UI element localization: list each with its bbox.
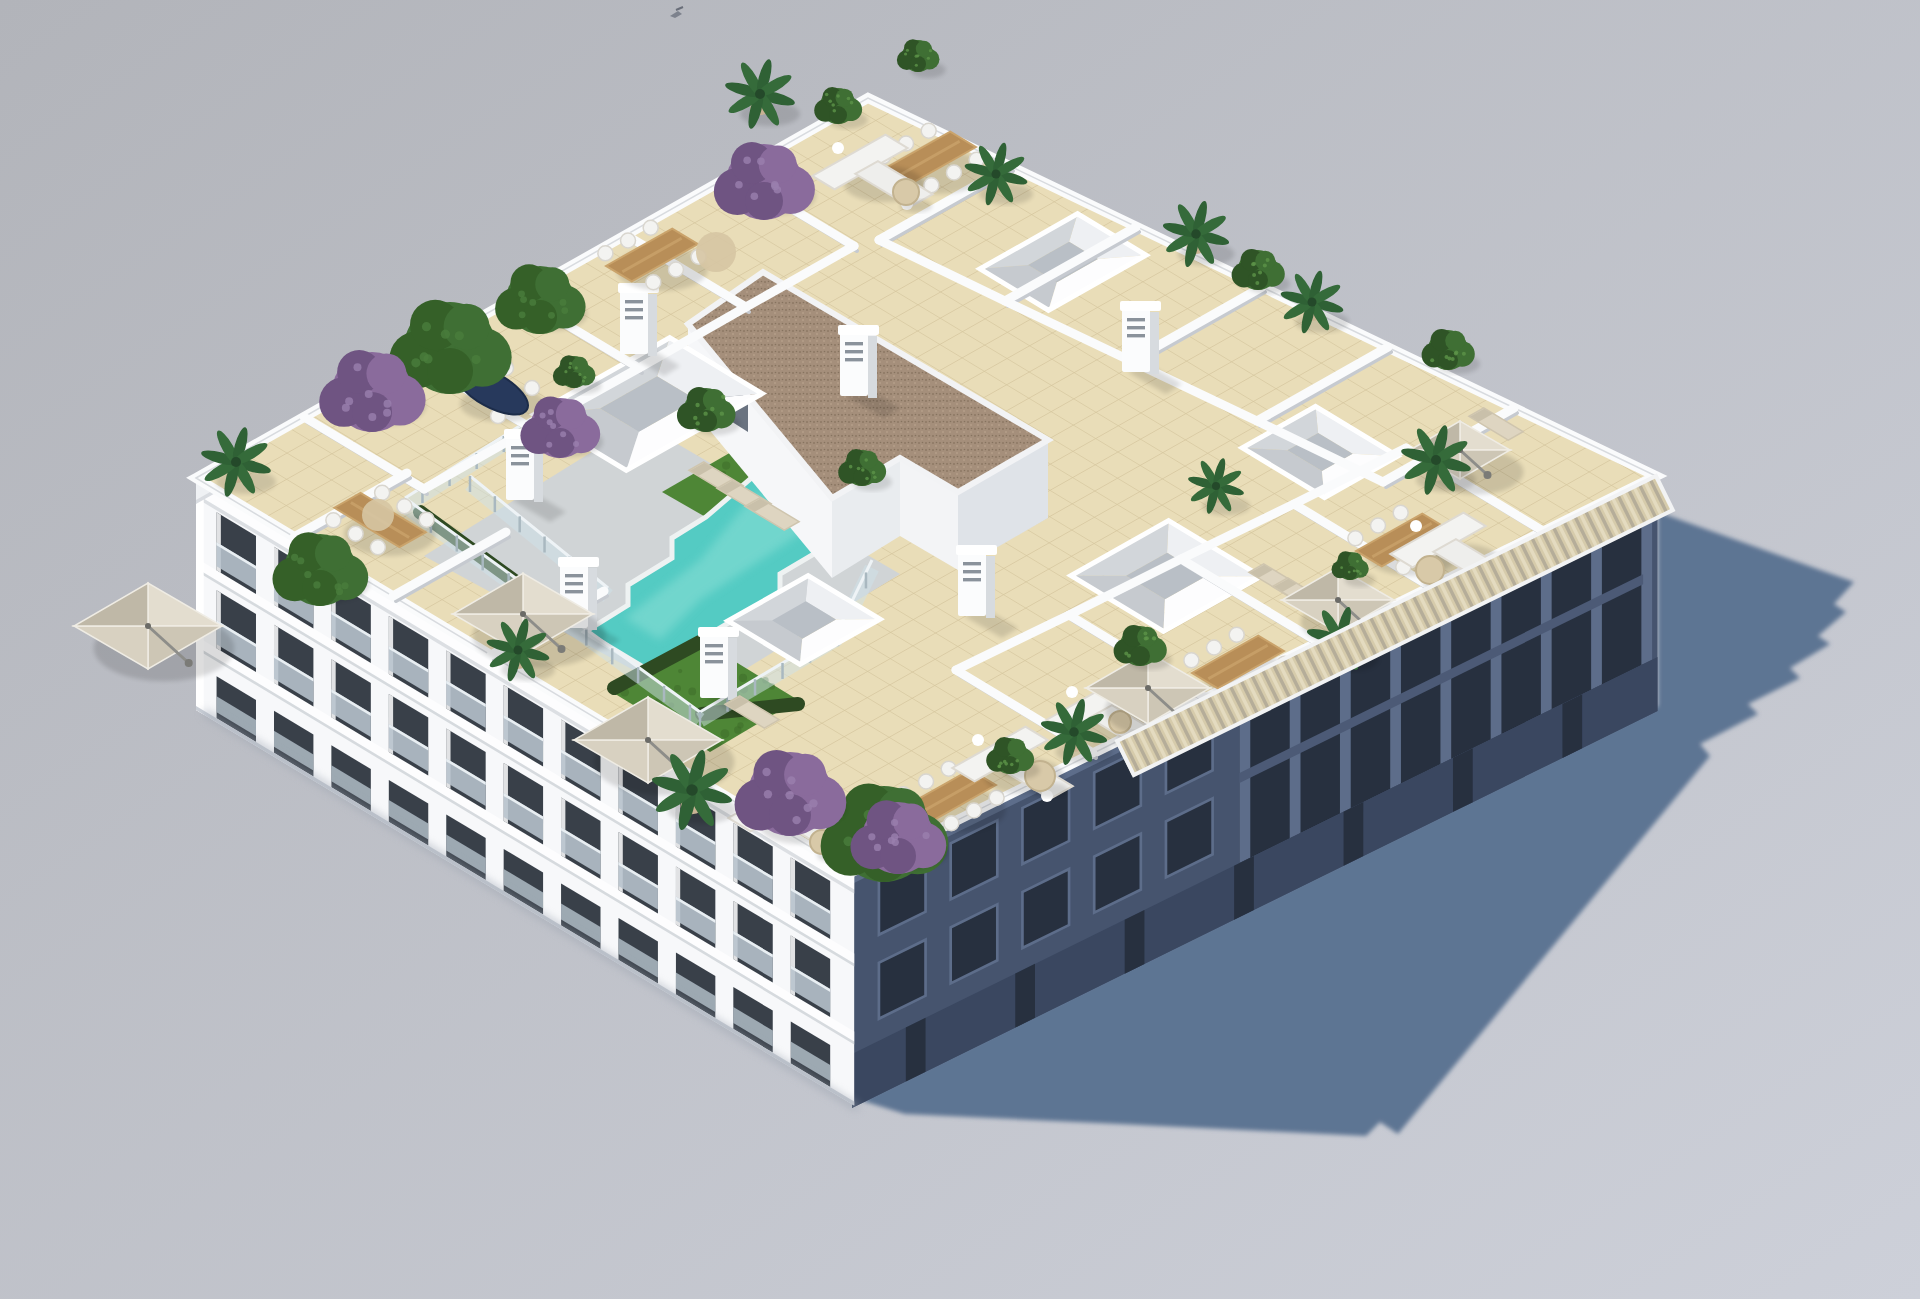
foliage-dot xyxy=(703,411,707,415)
chair xyxy=(598,246,613,261)
foliage-dot xyxy=(1263,263,1267,267)
chair xyxy=(919,774,934,789)
round-top xyxy=(1416,556,1444,584)
foliage-dot xyxy=(891,819,898,826)
chimney-body xyxy=(620,288,648,354)
chair xyxy=(525,381,540,396)
grass-texture xyxy=(737,722,743,728)
chair xyxy=(419,512,434,527)
foliage-dot xyxy=(864,458,868,462)
cushion xyxy=(972,734,984,746)
foliage-dot xyxy=(1462,352,1466,356)
chimney-cap xyxy=(558,557,599,567)
jute-rug xyxy=(362,499,394,531)
foliage-dot xyxy=(1124,652,1128,656)
palm-crown xyxy=(1191,229,1201,239)
foliage-dot xyxy=(927,57,930,60)
chimney-side xyxy=(728,638,737,700)
foliage-dot xyxy=(383,400,391,408)
chimney-vent xyxy=(565,582,583,585)
palm-crown xyxy=(514,646,523,655)
chair xyxy=(1207,640,1222,655)
chimney-body xyxy=(1122,306,1150,372)
foliage-dot xyxy=(1454,352,1458,356)
palm-crown xyxy=(755,89,765,99)
chair xyxy=(668,262,683,277)
foliage-dot xyxy=(771,181,779,189)
foliage-dot xyxy=(1266,258,1270,262)
foliage-dot xyxy=(353,363,361,371)
parasol-hub xyxy=(145,623,151,629)
foliage xyxy=(427,348,473,394)
foliage-dot xyxy=(297,557,304,564)
foliage-dot xyxy=(1251,262,1255,266)
foliage-dot xyxy=(865,477,869,481)
chair xyxy=(1184,653,1199,668)
parasol-base xyxy=(558,645,566,653)
foliage-dot xyxy=(560,299,567,306)
foliage-dot xyxy=(828,99,832,103)
foliage-dot xyxy=(874,844,881,851)
foliage xyxy=(769,794,811,836)
foliage xyxy=(444,304,490,350)
foliage-dot xyxy=(915,64,918,67)
palm-crown xyxy=(231,457,241,467)
foliage-dot xyxy=(710,407,714,411)
foliage-dot xyxy=(1145,636,1149,640)
grass-texture xyxy=(678,669,682,673)
se-ground-pillar xyxy=(1125,910,1145,974)
chair xyxy=(944,816,959,831)
chimney-vent xyxy=(963,570,981,573)
foliage xyxy=(1348,553,1362,567)
foliage-dot xyxy=(757,157,765,165)
foliage-dot xyxy=(861,468,865,472)
foliage xyxy=(916,41,932,57)
round-top xyxy=(893,179,919,205)
foliage-dot xyxy=(575,366,578,369)
foliage-dot xyxy=(548,409,554,415)
foliage-dot xyxy=(916,54,919,57)
foliage-dot xyxy=(857,467,861,471)
foliage-dot xyxy=(420,352,429,361)
foliage-dot xyxy=(785,791,793,799)
foliage-dot xyxy=(560,431,566,437)
foliage xyxy=(1001,756,1019,774)
foliage-dot xyxy=(892,839,899,846)
foliage-dot xyxy=(1015,759,1019,763)
foliage-dot xyxy=(411,358,420,367)
foliage-dot xyxy=(825,93,829,97)
chimney-vent xyxy=(511,462,529,465)
palm-crown xyxy=(1431,455,1441,465)
chair xyxy=(621,233,636,248)
parasol-hub xyxy=(1145,685,1151,691)
chair xyxy=(326,513,341,528)
foliage xyxy=(1255,251,1275,271)
foliage xyxy=(1007,739,1025,757)
foliage-dot xyxy=(695,421,699,425)
parasol-hub xyxy=(520,611,526,617)
foliage-dot xyxy=(1152,637,1156,641)
chimney-vent xyxy=(705,652,723,655)
parasol-hub xyxy=(645,737,651,743)
foliage-dot xyxy=(1258,271,1262,275)
chimney-vent xyxy=(963,562,981,565)
foliage-dot xyxy=(1004,762,1008,766)
foliage-dot xyxy=(998,764,1002,768)
foliage-dot xyxy=(472,355,481,364)
se-ground-pillar xyxy=(1234,856,1254,920)
foliage xyxy=(315,535,351,571)
foliage-dot xyxy=(304,571,311,578)
foliage-dot xyxy=(833,109,837,113)
architectural-render-stage xyxy=(0,0,1920,1299)
foliage-dot xyxy=(335,583,342,590)
sw-corner-edge xyxy=(196,478,204,715)
se-ground-pillar xyxy=(1453,748,1473,812)
chair xyxy=(643,220,658,235)
foliage-dot xyxy=(1430,358,1434,362)
chair xyxy=(1393,505,1408,520)
foliage-dot xyxy=(1010,763,1014,767)
chair xyxy=(375,485,390,500)
foliage xyxy=(1445,331,1465,351)
foliage-dot xyxy=(520,296,527,303)
parasol-base xyxy=(185,659,193,667)
jute-rug xyxy=(696,232,736,272)
foliage-dot xyxy=(546,442,552,448)
grass-texture xyxy=(739,674,747,682)
foliage-dot xyxy=(564,370,567,373)
chair xyxy=(397,499,412,514)
foliage-dot xyxy=(850,101,854,105)
chimney-cap xyxy=(1120,301,1161,311)
foliage-dot xyxy=(872,471,876,475)
foliage xyxy=(1248,270,1268,290)
chimney-side xyxy=(648,294,657,356)
foliage-dot xyxy=(904,52,907,55)
foliage xyxy=(572,357,588,373)
foliage-dot xyxy=(849,465,853,469)
foliage-dot xyxy=(929,49,932,52)
chimney-side xyxy=(868,336,877,398)
foliage-dot xyxy=(547,419,553,425)
chimney-vent xyxy=(1127,326,1145,329)
foliage-dot xyxy=(764,790,772,798)
grass-texture xyxy=(722,462,730,470)
foliage-dot xyxy=(1357,570,1360,573)
foliage-dot xyxy=(831,103,835,107)
parasol-base xyxy=(1484,471,1492,479)
chimney-vent xyxy=(1127,334,1145,337)
chair xyxy=(1371,518,1386,533)
chimney-side xyxy=(986,556,995,618)
foliage-dot xyxy=(383,409,391,417)
se-ground-pillar xyxy=(1015,964,1035,1028)
foliage xyxy=(366,354,406,394)
foliage-dot xyxy=(569,362,572,365)
chimney-cap xyxy=(698,627,739,637)
foliage-dot xyxy=(1356,560,1359,563)
foliage-dot xyxy=(836,94,840,98)
foliage-dot xyxy=(291,554,298,561)
foliage-dot xyxy=(1359,572,1362,575)
foliage-dot xyxy=(735,181,743,189)
foliage-dot xyxy=(540,413,546,419)
foliage xyxy=(1130,646,1150,666)
foliage-dot xyxy=(1444,355,1448,359)
foliage-dot xyxy=(1353,570,1356,573)
cushion xyxy=(1410,520,1422,532)
palm-crown xyxy=(992,170,1001,179)
cushion xyxy=(832,142,844,154)
chimney-vent xyxy=(705,660,723,663)
foliage-dot xyxy=(906,49,909,52)
chimney-vent xyxy=(845,350,863,353)
chimney-vent xyxy=(705,644,723,647)
foliage-dot xyxy=(762,768,770,776)
foliage-dot xyxy=(1348,571,1351,574)
foliage-dot xyxy=(455,331,464,340)
palm-crown xyxy=(1069,727,1079,737)
foliage-dot xyxy=(720,411,724,415)
foliage-dot xyxy=(561,307,568,314)
foliage-dot xyxy=(368,413,376,421)
foliage-dot xyxy=(548,312,555,319)
foliage-dot xyxy=(792,816,800,824)
foliage-dot xyxy=(751,192,759,200)
chimney-vent xyxy=(845,358,863,361)
grass-texture xyxy=(720,729,729,738)
foliage-dot xyxy=(868,833,875,840)
foliage-dot xyxy=(365,390,373,398)
se-ground-pillar xyxy=(1562,694,1582,758)
cushion xyxy=(1066,686,1078,698)
foliage-dot xyxy=(922,832,929,839)
foliage-dot xyxy=(518,290,525,297)
chimney-side xyxy=(1150,312,1159,374)
foliage-dot xyxy=(582,379,585,382)
chair xyxy=(1229,627,1244,642)
chimney-vent xyxy=(565,590,583,593)
chair xyxy=(370,540,385,555)
foliage xyxy=(829,106,847,124)
chair xyxy=(966,803,981,818)
foliage-dot xyxy=(787,776,795,784)
chimney-vent xyxy=(1127,318,1145,321)
foliage-dot xyxy=(1143,632,1147,636)
chimney-vent xyxy=(845,342,863,345)
foliage-dot xyxy=(693,416,697,420)
parasol-hub xyxy=(1335,597,1341,603)
foliage-dot xyxy=(847,97,851,101)
foliage-dot xyxy=(578,373,581,376)
chimney-vent xyxy=(625,300,643,303)
chimney-vent xyxy=(625,308,643,311)
foliage xyxy=(910,56,926,72)
chair xyxy=(348,526,363,541)
se-ground-pillar xyxy=(906,1018,926,1082)
chimney-body xyxy=(700,632,728,698)
grass-texture xyxy=(674,685,681,692)
foliage-dot xyxy=(1340,566,1343,569)
chair xyxy=(921,123,936,138)
foliage-dot xyxy=(441,330,450,339)
palm-crown xyxy=(1308,298,1317,307)
chimney-cap xyxy=(956,545,997,555)
foliage-dot xyxy=(873,475,877,479)
chair xyxy=(1348,531,1363,546)
foliage xyxy=(535,267,569,301)
chimney-vent xyxy=(511,454,529,457)
chimney-vent xyxy=(565,574,583,577)
foliage-dot xyxy=(519,311,526,318)
foliage-dot xyxy=(341,582,348,589)
chimney-body xyxy=(840,330,868,396)
palm-crown xyxy=(1212,482,1220,490)
foliage-dot xyxy=(583,376,586,379)
palm-crown xyxy=(686,784,698,796)
chimney-body xyxy=(958,550,986,616)
foliage xyxy=(784,754,826,796)
chair xyxy=(646,275,661,290)
foliage-dot xyxy=(568,366,571,369)
chair xyxy=(989,790,1004,805)
foliage-dot xyxy=(573,441,579,447)
foliage-dot xyxy=(1252,273,1256,277)
foliage-dot xyxy=(529,299,536,306)
chimney-vent xyxy=(963,578,981,581)
foliage xyxy=(556,399,586,429)
foliage xyxy=(759,146,797,184)
grass-texture xyxy=(688,688,696,696)
foliage-dot xyxy=(809,799,817,807)
foliage-dot xyxy=(422,322,431,331)
foliage-dot xyxy=(313,581,320,588)
rooftop-render xyxy=(0,0,1920,1299)
foliage-dot xyxy=(342,404,350,412)
chimney-cap xyxy=(838,325,879,335)
foliage-dot xyxy=(695,403,699,407)
se-ground-pillar xyxy=(1344,802,1364,866)
foliage xyxy=(859,451,877,469)
foliage-dot xyxy=(1255,281,1259,285)
chair xyxy=(946,165,961,180)
foliage-dot xyxy=(743,156,751,164)
chimney-vent xyxy=(625,316,643,319)
foliage-dot xyxy=(721,395,725,399)
